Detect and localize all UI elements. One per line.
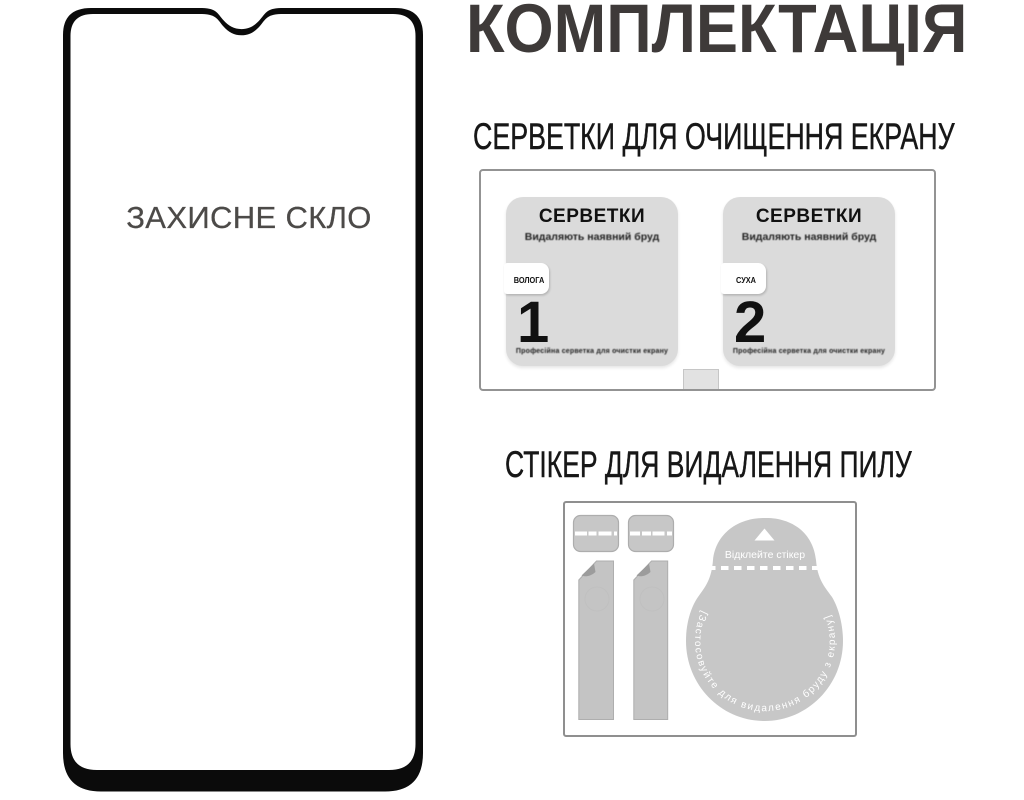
svg-text:Відклейте стікер: Відклейте стікер — [725, 549, 805, 561]
